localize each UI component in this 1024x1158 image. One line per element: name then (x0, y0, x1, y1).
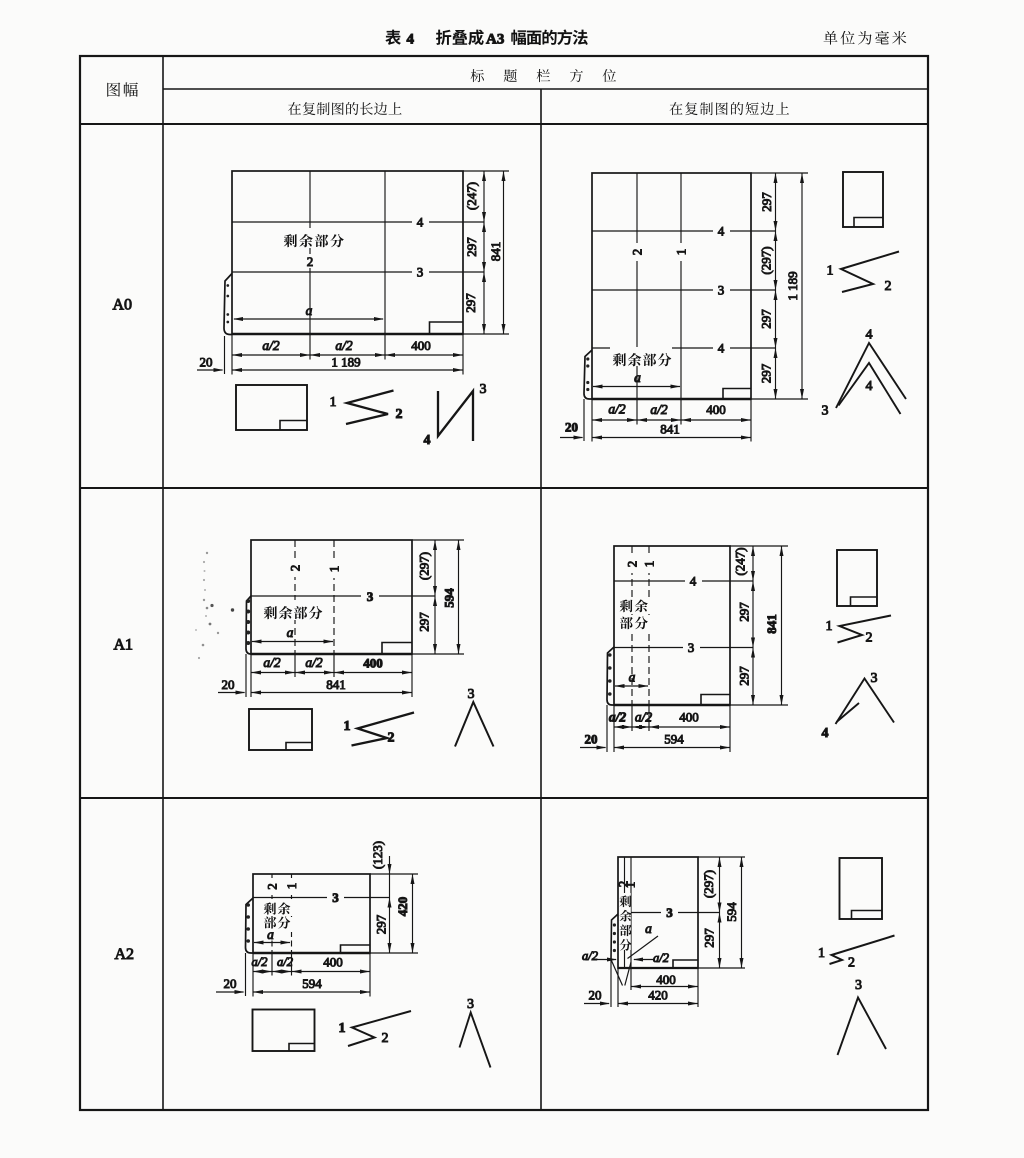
svg-text:a: a (645, 921, 652, 936)
svg-text:841: 841 (660, 422, 680, 437)
svg-text:20: 20 (589, 988, 602, 1003)
svg-text:297: 297 (463, 293, 478, 313)
svg-text:A3: A3 (486, 32, 504, 48)
svg-text:1: 1 (623, 882, 638, 889)
svg-text:4: 4 (866, 379, 873, 394)
svg-text:20: 20 (200, 355, 213, 370)
svg-text:297: 297 (374, 914, 389, 934)
svg-text:3: 3 (688, 640, 695, 655)
svg-text:A1: A1 (114, 637, 134, 654)
svg-text:a: a (634, 370, 641, 385)
svg-text:1: 1 (327, 566, 342, 573)
svg-text:420: 420 (395, 897, 410, 917)
svg-text:(123): (123) (370, 841, 385, 869)
svg-text:(247): (247) (733, 547, 748, 575)
svg-text:1: 1 (344, 719, 351, 734)
svg-text:1: 1 (827, 264, 834, 279)
svg-text:a/2: a/2 (582, 949, 598, 963)
svg-text:(297): (297) (417, 552, 432, 580)
svg-text:1: 1 (818, 946, 825, 961)
svg-text:297: 297 (737, 666, 752, 686)
svg-text:400: 400 (706, 402, 726, 417)
svg-text:2: 2 (866, 631, 873, 646)
svg-text:2: 2 (307, 254, 314, 269)
svg-text:297: 297 (737, 602, 752, 622)
svg-text:1: 1 (339, 1021, 346, 1036)
svg-text:2: 2 (625, 561, 640, 568)
svg-text:2: 2 (396, 407, 403, 422)
svg-text:3: 3 (718, 283, 725, 298)
svg-text:a/2: a/2 (262, 338, 280, 353)
svg-text:1: 1 (826, 619, 833, 634)
svg-text:3: 3 (855, 978, 862, 993)
svg-text:594: 594 (302, 976, 322, 991)
svg-text:400: 400 (323, 955, 343, 970)
svg-text:(297): (297) (701, 870, 716, 898)
svg-text:4: 4 (718, 341, 725, 356)
svg-text:297: 297 (702, 928, 717, 948)
svg-text:a/2: a/2 (277, 955, 293, 969)
svg-text:3: 3 (468, 687, 475, 702)
svg-text:4: 4 (718, 224, 725, 239)
svg-text:a: a (267, 927, 274, 942)
svg-text:297: 297 (464, 237, 479, 257)
svg-text:a/2: a/2 (305, 655, 323, 670)
svg-text:2: 2 (288, 565, 303, 572)
svg-text:420: 420 (648, 988, 668, 1003)
svg-text:841: 841 (488, 242, 503, 262)
svg-text:4: 4 (822, 726, 829, 741)
svg-text:1 189: 1 189 (785, 271, 800, 300)
svg-text:400: 400 (656, 972, 676, 987)
svg-text:297: 297 (759, 192, 774, 212)
svg-text:a/2: a/2 (635, 710, 653, 725)
svg-text:a: a (287, 625, 294, 640)
svg-text:20: 20 (224, 976, 237, 991)
svg-text:3: 3 (822, 404, 829, 419)
svg-text:400: 400 (411, 338, 431, 353)
svg-text:(247): (247) (464, 182, 479, 210)
svg-text:a/2: a/2 (653, 951, 669, 965)
svg-text:4: 4 (417, 215, 424, 230)
svg-text:2: 2 (388, 731, 395, 746)
svg-text:3: 3 (332, 890, 339, 905)
svg-text:297: 297 (417, 612, 432, 632)
svg-text:594: 594 (724, 902, 739, 922)
svg-text:a: a (629, 670, 636, 685)
svg-text:a/2: a/2 (263, 655, 281, 670)
svg-text:a: a (306, 303, 313, 318)
svg-text:20: 20 (565, 420, 578, 435)
svg-text:3: 3 (417, 265, 424, 280)
svg-text:3: 3 (467, 997, 474, 1012)
svg-text:297: 297 (759, 363, 774, 383)
svg-text:20: 20 (585, 732, 598, 747)
svg-text:3: 3 (871, 671, 878, 686)
svg-text:a/2: a/2 (335, 338, 353, 353)
svg-text:1: 1 (674, 249, 689, 256)
svg-text:400: 400 (363, 656, 383, 671)
svg-text:A0: A0 (113, 297, 133, 314)
svg-text:2: 2 (630, 249, 645, 256)
svg-text:a/2: a/2 (609, 710, 627, 725)
svg-text:a/2: a/2 (650, 402, 668, 417)
svg-text:2: 2 (382, 1031, 389, 1046)
svg-text:2: 2 (885, 279, 892, 294)
svg-text:400: 400 (679, 710, 699, 725)
svg-text:1: 1 (284, 883, 299, 890)
svg-text:A2: A2 (115, 946, 135, 963)
svg-text:297: 297 (759, 309, 774, 329)
svg-text:3: 3 (480, 382, 487, 397)
svg-text:20: 20 (222, 677, 235, 692)
svg-text:594: 594 (664, 732, 684, 747)
svg-text:4: 4 (407, 32, 415, 48)
svg-text:1 189: 1 189 (331, 355, 360, 370)
svg-text:2: 2 (265, 883, 280, 890)
svg-text:2: 2 (848, 956, 855, 971)
svg-text:1: 1 (642, 561, 657, 568)
svg-text:1: 1 (330, 395, 337, 410)
svg-text:841: 841 (326, 677, 346, 692)
svg-text:3: 3 (367, 589, 374, 604)
svg-text:4: 4 (690, 574, 697, 589)
svg-text:(297): (297) (759, 246, 774, 274)
svg-text:4: 4 (866, 328, 873, 343)
svg-text:4: 4 (424, 433, 431, 448)
svg-text:841: 841 (764, 614, 779, 634)
svg-text:a/2: a/2 (252, 955, 268, 969)
svg-text:594: 594 (442, 588, 457, 608)
svg-text:a/2: a/2 (608, 402, 626, 417)
svg-text:3: 3 (666, 905, 673, 920)
